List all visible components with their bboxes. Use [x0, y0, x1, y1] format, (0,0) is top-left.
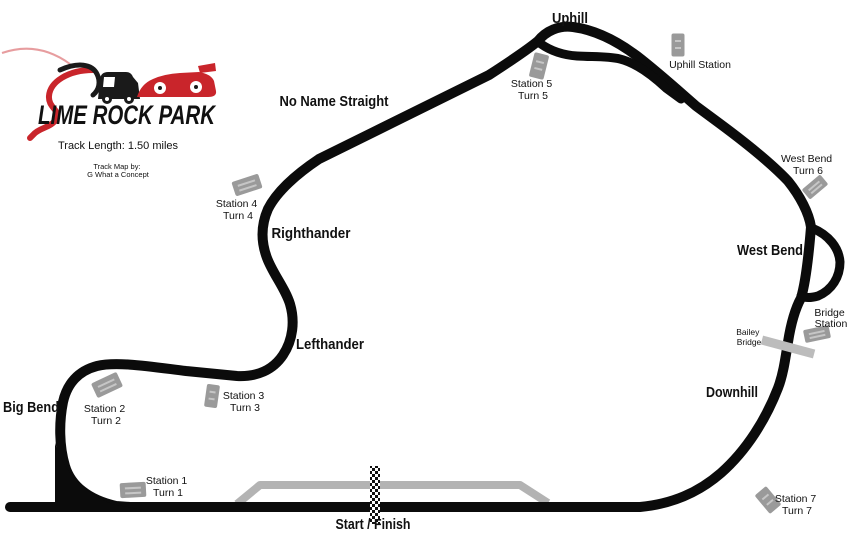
west-bend-turn-6-label: West Bend Turn 6 [781, 153, 835, 177]
station-4-label: Station 4 Turn 4 [216, 198, 260, 222]
station-1-label: Station 1 Turn 1 [146, 475, 190, 499]
station-5-marker [529, 52, 550, 80]
west-bend-turn-6-marker [802, 174, 829, 199]
bailey-bridge-label: Bailey Bridge [736, 327, 762, 347]
track-map-svg: Uphill No Name Straight Righthander Left… [0, 0, 855, 541]
logo-swoosh-tail [2, 49, 70, 64]
logo-car-silhouette [137, 63, 216, 97]
righthander-label: Righthander [272, 225, 351, 242]
station-3-label: Station 3 Turn 3 [223, 390, 267, 414]
station-5-label: Station 5 Turn 5 [511, 78, 555, 102]
bridge-station-label: Bridge Station [814, 307, 847, 330]
station-2-label: Station 2 Turn 2 [84, 403, 128, 427]
uphill-station-label: Uphill Station [669, 59, 731, 71]
station-7-label: Station 7 Turn 7 [775, 493, 819, 517]
uphill-label: Uphill [552, 10, 588, 27]
station-3-marker [204, 384, 220, 409]
lefthander-label: Lefthander [296, 336, 364, 353]
downhill-label: Downhill [706, 384, 758, 401]
west-bend-label: West Bend [737, 242, 803, 259]
uphill-station-marker [672, 34, 685, 57]
pit-lane-path [237, 485, 548, 504]
station-4-marker [231, 174, 262, 197]
station-1-marker [120, 482, 147, 498]
start-finish-label: Start / Finish [336, 516, 411, 533]
station-2-marker [91, 372, 123, 398]
big-bend-junction-fill [55, 443, 148, 511]
credit-label: Track Map by: G What a Concept [87, 162, 150, 179]
track-map: Uphill No Name Straight Righthander Left… [0, 0, 855, 541]
big-bend-label: Big Bend [3, 399, 59, 416]
logo-title: LIME ROCK PARK [38, 100, 217, 130]
logo: LIME ROCK PARK Track Length: 1.50 miles … [2, 49, 217, 179]
track-length-label: Track Length: 1.50 miles [58, 140, 179, 152]
no-name-straight-label: No Name Straight [280, 93, 389, 110]
